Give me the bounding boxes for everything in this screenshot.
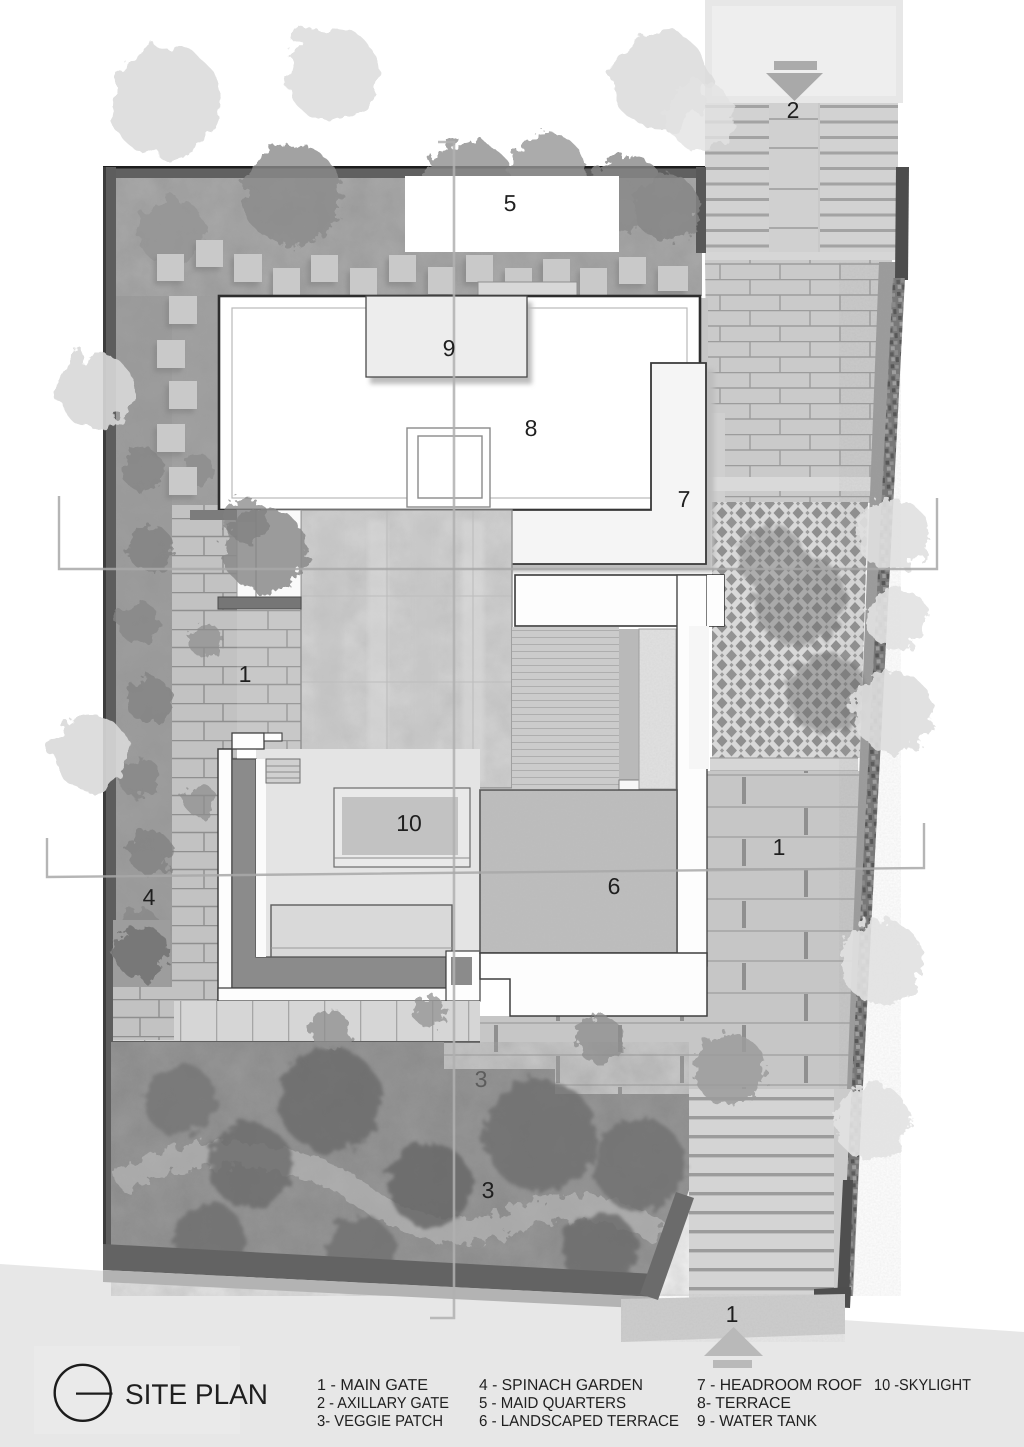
svg-text:8- TERRACE: 8- TERRACE	[697, 1395, 791, 1412]
svg-text:9: 9	[443, 335, 456, 361]
svg-text:1 - MAIN GATE: 1 - MAIN GATE	[317, 1377, 428, 1394]
svg-text:1: 1	[773, 834, 786, 860]
svg-text:10: 10	[396, 810, 422, 836]
svg-text:6 - LANDSCAPED TERRACE: 6 - LANDSCAPED TERRACE	[479, 1413, 679, 1430]
svg-text:4: 4	[143, 884, 156, 910]
svg-text:6: 6	[608, 873, 621, 899]
svg-text:8: 8	[525, 415, 538, 441]
svg-text:4 - SPINACH GARDEN: 4 - SPINACH GARDEN	[479, 1377, 643, 1394]
svg-text:3: 3	[475, 1066, 488, 1092]
svg-text:3: 3	[482, 1177, 495, 1203]
svg-text:10 -SKYLIGHT: 10 -SKYLIGHT	[874, 1377, 971, 1394]
svg-text:5: 5	[504, 190, 517, 216]
svg-text:5 - MAID QUARTERS: 5 - MAID QUARTERS	[479, 1395, 626, 1412]
svg-text:2: 2	[787, 97, 800, 123]
svg-text:1: 1	[239, 661, 252, 687]
svg-text:9 - WATER TANK: 9 - WATER TANK	[697, 1413, 817, 1430]
svg-text:2 - AXILLARY GATE: 2 - AXILLARY GATE	[317, 1395, 449, 1412]
svg-text:3- VEGGIE PATCH: 3- VEGGIE PATCH	[317, 1413, 443, 1430]
svg-text:1: 1	[726, 1301, 739, 1327]
svg-text:7 - HEADROOM ROOF: 7 - HEADROOM ROOF	[697, 1377, 862, 1394]
svg-text:SITE PLAN: SITE PLAN	[125, 1379, 268, 1411]
svg-text:7: 7	[678, 486, 691, 512]
